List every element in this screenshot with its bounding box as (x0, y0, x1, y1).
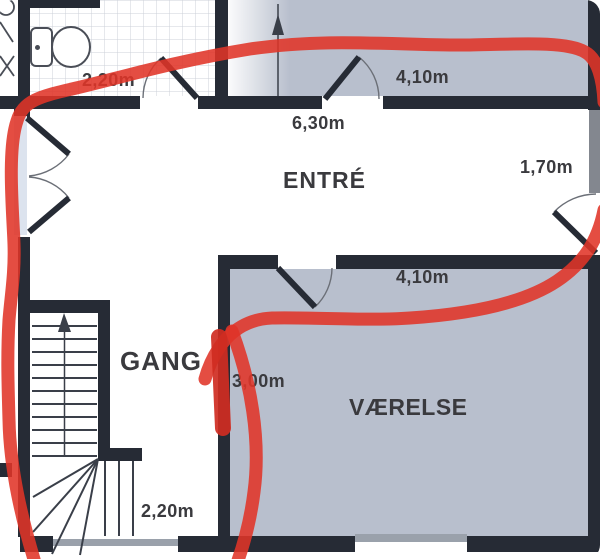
sink-icon (0, 0, 14, 76)
staircase (32, 313, 133, 555)
dimension-vaerelse-width: 4,10m (396, 268, 449, 286)
stair-direction-arrow-icon (58, 313, 71, 332)
vaerelse-window (355, 534, 467, 542)
door-thresholds (140, 96, 600, 269)
dimension-top-room-width: 4,10m (396, 68, 449, 86)
dimension-right-door: 1,70m (520, 158, 573, 176)
french-door-upper-leaf (27, 118, 69, 154)
french-door-lower-leaf (29, 198, 69, 232)
room-label-gang: GANG (120, 348, 202, 374)
dimension-bathroom-width: 2,20m (82, 71, 135, 89)
floor-plan-image: 2,20m 4,10m 6,30m 1,70m 4,10m 3,00m 2,20… (0, 0, 600, 559)
room-label-vaerelse: VÆRELSE (349, 396, 468, 419)
toilet-icon (31, 27, 90, 67)
room-label-entre: ENTRÉ (283, 169, 366, 192)
dimension-gang-depth: 3,00m (232, 372, 285, 390)
french-door-glass (14, 116, 27, 235)
dimension-stair-width: 2,20m (141, 502, 194, 520)
top-room-shading (228, 0, 290, 96)
gang-window (53, 539, 178, 546)
dimension-entre-width: 6,30m (292, 114, 345, 132)
